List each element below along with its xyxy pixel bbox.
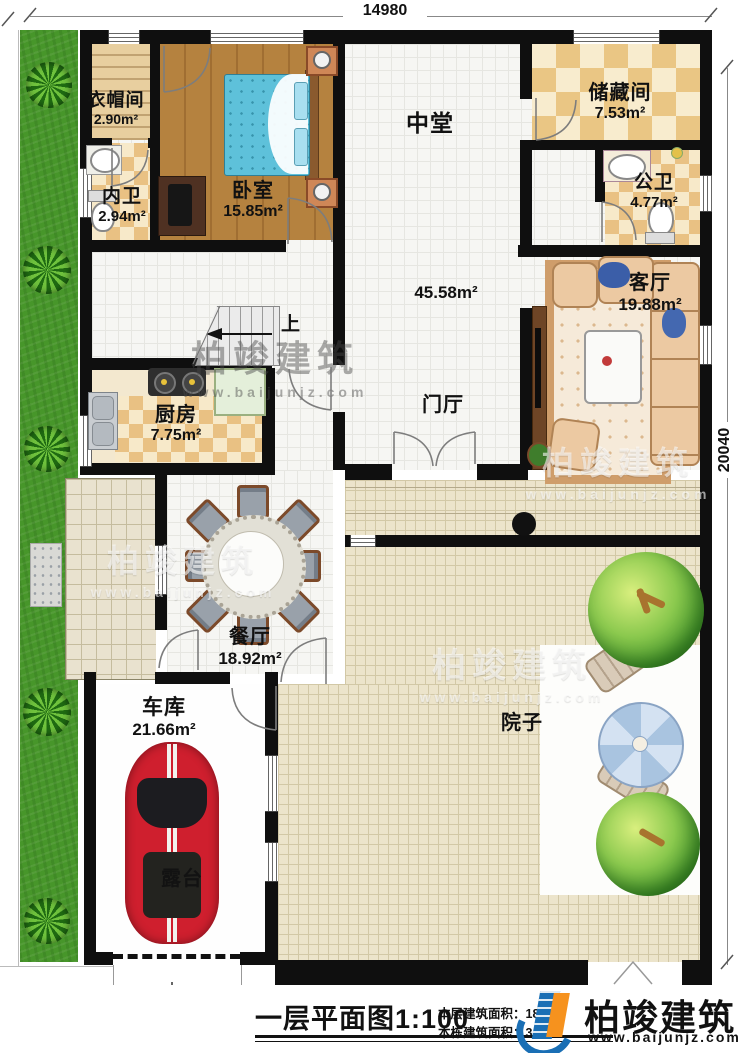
wall-hall-west (333, 412, 345, 470)
room-label-public-bath: 公卫 4.77m² (612, 172, 696, 211)
tree-icon (596, 792, 700, 896)
wall-kitchen-south (80, 463, 275, 475)
room-label-living: 客厅 19.88m² (598, 272, 702, 315)
room-label-yard: 院子 (486, 712, 558, 735)
room-label-hall: 中堂 (388, 110, 472, 136)
toilet-tank (645, 232, 675, 244)
wall-dining-west (155, 470, 167, 545)
wall-yard-south (275, 960, 588, 985)
room-label-dining: 餐厅 18.92m² (190, 626, 310, 669)
room-label-foyer: 门厅 (408, 394, 478, 417)
burner-flame (189, 379, 195, 385)
room-label-wardrobe: 衣帽间 2.90m² (66, 90, 166, 127)
plan-title-text: 一层平面图 (255, 1004, 395, 1034)
plant-bush (24, 426, 70, 472)
wall-right (700, 30, 712, 985)
window (155, 545, 167, 595)
flower-icon (602, 356, 612, 366)
window (573, 30, 660, 44)
room-label-garage: 车库 21.66m² (104, 696, 224, 740)
wall-dining-west (155, 593, 167, 630)
wall-garage-south (84, 952, 113, 965)
wall-garage-west (84, 672, 96, 965)
armchair (552, 262, 598, 308)
plant-bush (24, 898, 70, 944)
shower-icon (671, 147, 683, 159)
dining-table-top (218, 531, 284, 597)
wall-bedroom-south (80, 240, 286, 252)
wall-garage-south (240, 952, 278, 965)
wall-hall-east (520, 141, 532, 257)
window (265, 842, 278, 882)
umbrella-center (632, 736, 648, 752)
logo-swoosh (509, 995, 582, 1053)
tv-icon (168, 184, 192, 226)
plan-title: 一层平面图1:100 (255, 997, 469, 1036)
room-label-storage: 储藏间 7.53m² (568, 82, 672, 123)
stone-pad (30, 543, 62, 607)
window (700, 325, 712, 365)
bed-pillow (294, 128, 308, 166)
entry-gate-icon (614, 962, 652, 984)
lamp-icon (313, 183, 331, 201)
wall-storage-south (520, 140, 712, 150)
dimension-line-right (727, 68, 728, 965)
wall-foyer-south (345, 464, 392, 480)
wall-bedroom-south (334, 240, 345, 252)
window (350, 535, 376, 547)
chair-icon (237, 485, 269, 519)
wall-hall-west (333, 252, 345, 365)
plant-bush (23, 688, 71, 736)
window (265, 755, 278, 812)
room-label-bedroom: 卧室 15.85m² (203, 180, 303, 221)
window (210, 30, 304, 44)
room-label-kitchen: 厨房 7.75m² (126, 404, 226, 445)
armchair (547, 417, 601, 473)
plant-icon (527, 442, 551, 468)
plant-bush (23, 246, 71, 294)
window (108, 30, 140, 44)
garage-door-dashed (113, 954, 240, 959)
porch-column (512, 512, 536, 536)
dimension-right: 20040 (716, 422, 740, 478)
coffee-table (584, 330, 642, 404)
dimension-top: 14980 (343, 2, 427, 22)
stairs-up-label: 上 (279, 314, 303, 336)
side-terrace (65, 478, 156, 680)
wall-dining-garage (155, 672, 230, 684)
sheet-edge-bottom-left (0, 966, 114, 967)
floor-plan: 衣帽间 2.90m² 内卫 2.94m² 卧室 15.85m² 中堂 45.58… (0, 0, 750, 1053)
basin-icon (92, 396, 114, 420)
lamp-icon (313, 51, 331, 69)
basin-icon (92, 422, 114, 446)
burner-flame (161, 379, 167, 385)
room-label-inner-bath: 内卫 2.94m² (80, 186, 164, 225)
tv-icon (535, 328, 541, 408)
hall-area-label: 45.58m² (396, 283, 496, 303)
footer: 一层平面图1:100 本层建筑面积：18 本栋建筑面积：34 柏竣建筑 www.… (0, 985, 750, 1053)
logo-mark (514, 985, 578, 1047)
window (700, 175, 712, 212)
wall-porch-front (345, 535, 712, 547)
sheet-edge-left (18, 30, 19, 967)
wall-hall-east (520, 44, 532, 99)
wall-garage-east (265, 672, 278, 965)
bed-pillow (294, 82, 308, 120)
room-label-terrace: 露台 (146, 868, 218, 891)
wall-wardrobe-bath (148, 138, 160, 148)
wall-yard-south (682, 960, 712, 985)
car-windshield (137, 778, 207, 828)
wall-foyer-south (477, 464, 528, 480)
porch-line (345, 487, 700, 488)
sink-icon (90, 148, 120, 173)
logo-url: www.baijunjz.com (588, 1029, 741, 1045)
